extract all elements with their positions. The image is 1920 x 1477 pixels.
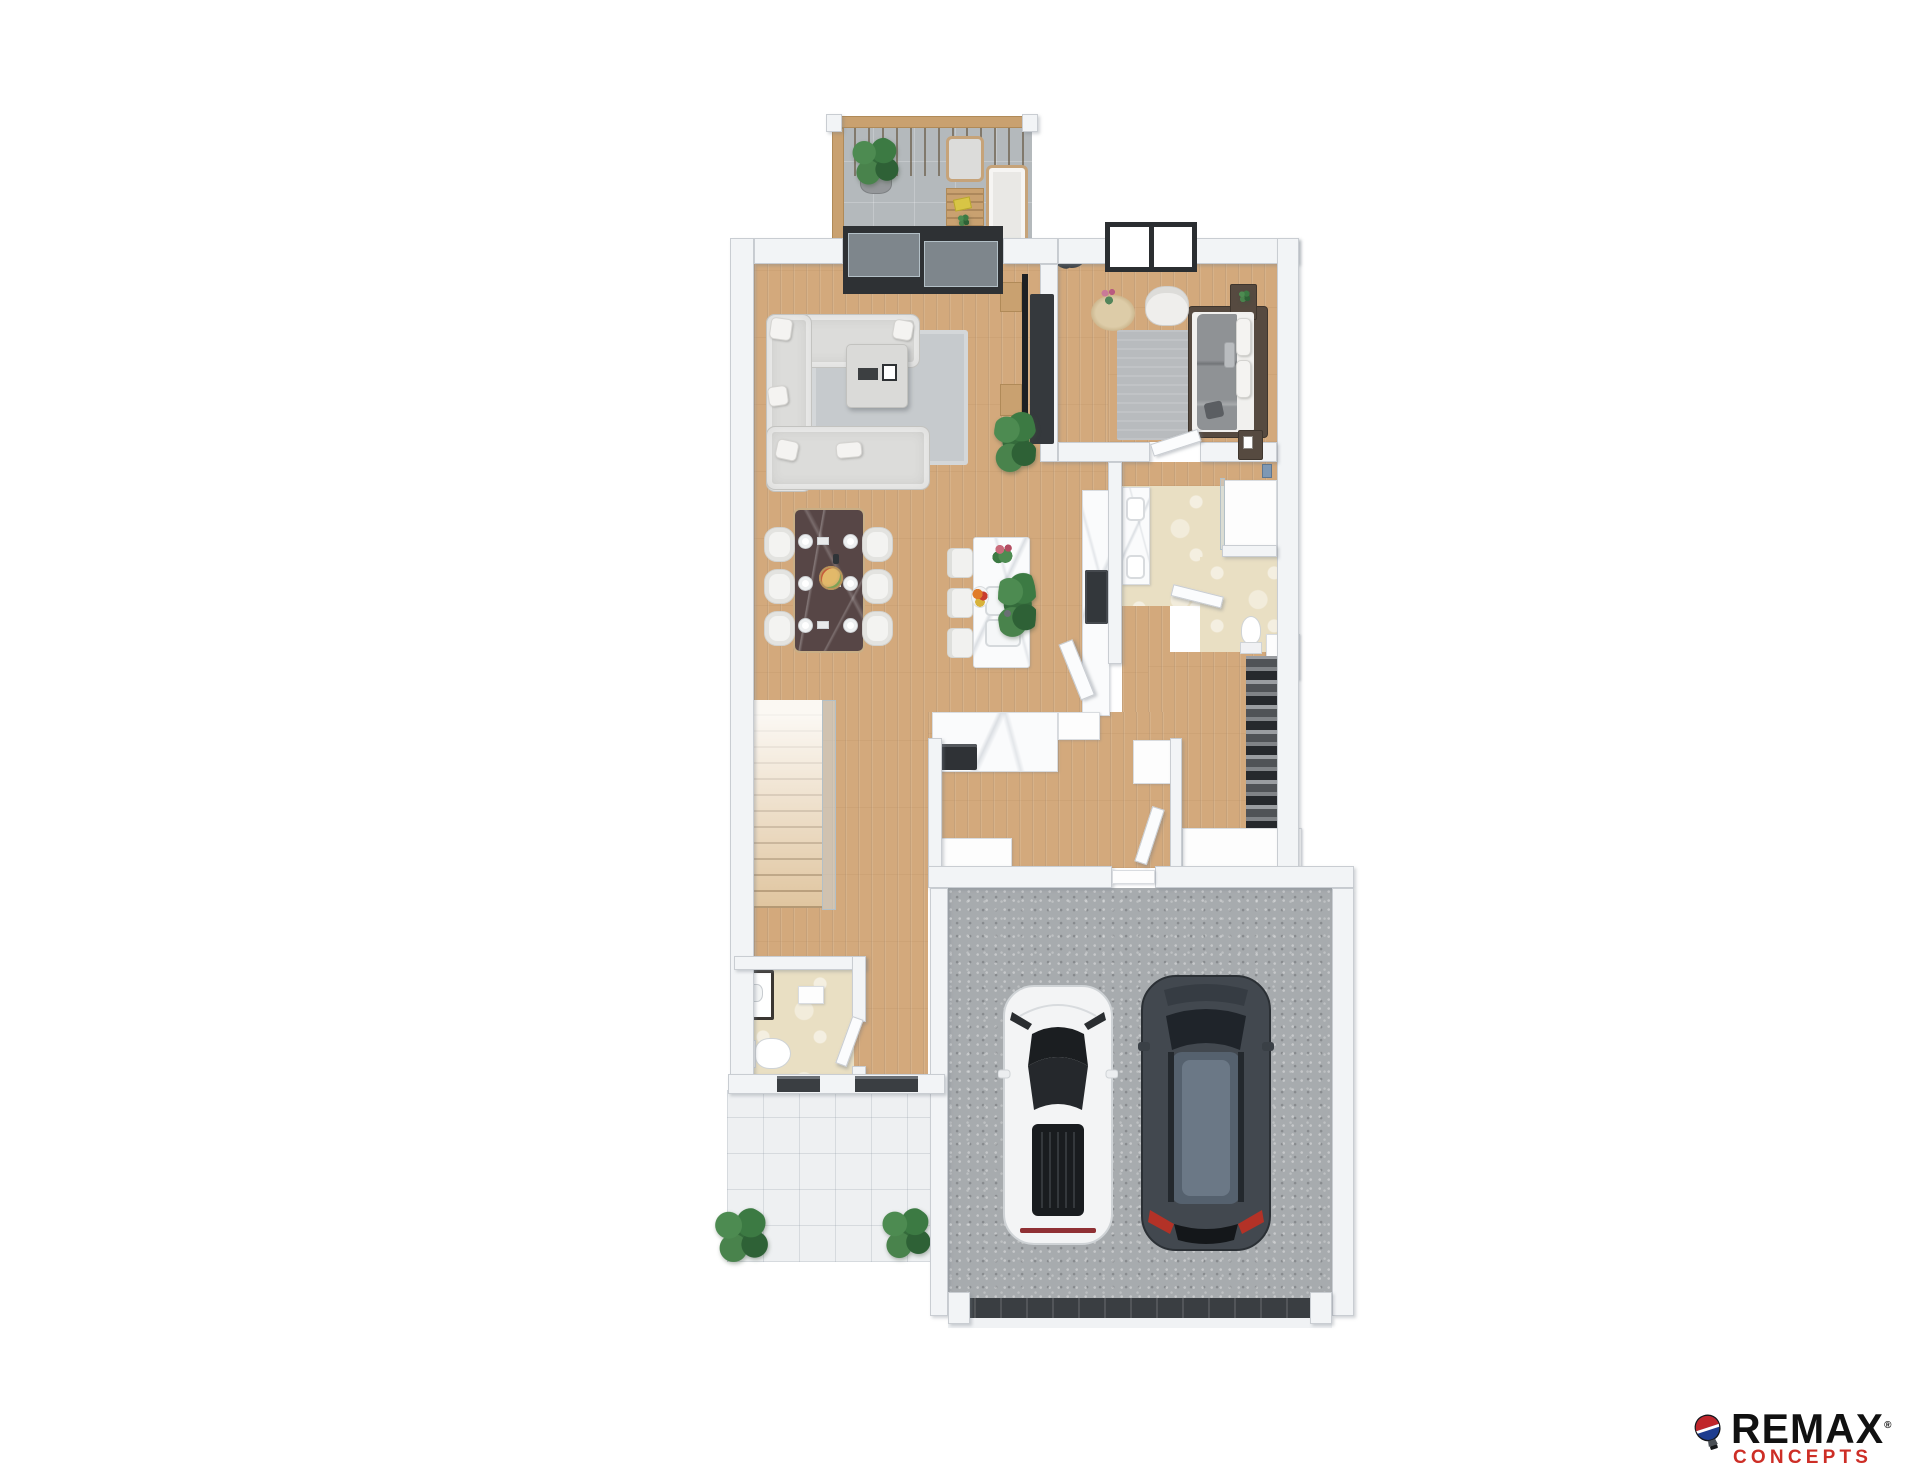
wall-art (1262, 464, 1272, 478)
dining-chair (862, 569, 893, 604)
tv-screen (1022, 274, 1028, 416)
sliding-door-pane (848, 233, 920, 277)
fruit-plate (971, 586, 989, 608)
powder-room-wall (852, 956, 866, 1022)
powder-toilet-bowl (755, 1038, 791, 1069)
entry-window-threshold (777, 1076, 820, 1092)
bed-pillow (1236, 360, 1251, 398)
dining-chair (764, 611, 795, 646)
exterior-wall-top (754, 238, 843, 264)
place-setting-plate (843, 534, 858, 549)
balcony-plant (848, 136, 902, 188)
garage-door (948, 1298, 1332, 1318)
exterior-wall-top (1003, 238, 1058, 264)
garage-wall-left (930, 888, 948, 1316)
porch-shrub (878, 1206, 934, 1262)
place-setting-plate (798, 534, 813, 549)
brand-text: REMAX (1731, 1405, 1884, 1452)
garage-door-jamb (948, 1292, 970, 1324)
staircase (753, 700, 823, 908)
centerpiece-dish (819, 566, 843, 590)
napkin (817, 537, 829, 545)
dining-chair (764, 569, 795, 604)
place-setting-plate (843, 618, 858, 633)
vanity-sink (1126, 497, 1145, 521)
bar-stool (947, 628, 973, 658)
coffee-table-books (858, 368, 878, 380)
shower-glass (1220, 478, 1225, 550)
sofa-pillow (835, 441, 862, 459)
registered-mark: ® (1884, 1420, 1892, 1431)
window-mullion (1149, 227, 1154, 267)
kitchen-cabinet (1058, 712, 1100, 740)
bedroom-armchair (1145, 286, 1189, 326)
outdoor-armchair (946, 136, 984, 182)
kitchen-bath-wall (1108, 462, 1122, 664)
media-shelf (1000, 282, 1022, 312)
place-setting-plate (843, 576, 858, 591)
dining-chair (764, 527, 795, 562)
indoor-plant (994, 406, 1036, 480)
brand-wordmark: REMAX® (1731, 1406, 1892, 1450)
pantry-cabinet (1133, 740, 1172, 784)
bedroom-window (1105, 222, 1197, 272)
floor-plan (0, 0, 1920, 1477)
wine-bottle (833, 554, 839, 564)
bedroom-rug (1117, 330, 1191, 440)
garage-door-trim (948, 1318, 1332, 1328)
wall-oven (937, 744, 977, 770)
bar-stool (947, 548, 973, 578)
place-setting-plate (798, 618, 813, 633)
sofa-pillow (774, 438, 800, 462)
vanity-sink (1126, 555, 1145, 579)
balcony-post (826, 114, 842, 132)
sliding-glass-door (843, 226, 1003, 294)
hanging-clothes (1246, 656, 1280, 830)
dining-chair (862, 611, 893, 646)
remax-balloon-icon (1693, 1412, 1725, 1452)
sofa-pillow (767, 385, 790, 408)
bed-pillow (1236, 318, 1251, 356)
white-sports-car (998, 982, 1118, 1248)
island-faucet (1004, 610, 1011, 617)
porch-shrub (710, 1206, 772, 1266)
bar-stool (947, 588, 973, 618)
toilet-tank (1240, 642, 1262, 654)
place-setting-plate (798, 576, 813, 591)
powder-shelf (798, 986, 824, 1004)
indoor-plant (998, 566, 1036, 646)
sliding-door-pane (924, 241, 998, 287)
closet-wall (1170, 738, 1182, 868)
remax-logo: REMAX® CONCEPTS (1693, 1406, 1913, 1474)
shower-partition-wall (1222, 545, 1277, 557)
garage-north-wall (928, 866, 1112, 888)
stair-glass-railing (822, 700, 836, 910)
powder-room-wall (734, 956, 866, 970)
island-flowers (990, 539, 1018, 565)
napkin (817, 621, 829, 629)
garage-wall-right (1332, 888, 1354, 1316)
cooktop (1085, 570, 1108, 624)
sofa-pillow (891, 318, 914, 341)
bedroom-south-wall (1058, 442, 1150, 462)
mudroom-bench (934, 838, 1012, 868)
garage-entry-threshold (1112, 870, 1155, 884)
balcony-railing-top (832, 116, 1034, 128)
entry-mudroom-wall (928, 738, 942, 868)
front-door-threshold (855, 1076, 918, 1092)
coffee-table-frame (882, 364, 897, 381)
shower-tray (1224, 480, 1277, 548)
page-background: REMAX® CONCEPTS (0, 0, 1920, 1477)
dining-chair (862, 527, 893, 562)
garage-north-wall (1155, 866, 1354, 888)
dresser-decor (1243, 436, 1253, 449)
balcony-post (1022, 114, 1038, 132)
bed-accent-pillow (1224, 342, 1235, 368)
garage-door-jamb (1310, 1292, 1332, 1324)
sofa-pillow (769, 317, 794, 342)
dark-suv (1138, 972, 1274, 1254)
nightstand-plant (1238, 290, 1251, 303)
flower-vase (1099, 286, 1119, 310)
exterior-wall-right (1277, 238, 1299, 868)
toilet-bowl (1241, 616, 1261, 644)
